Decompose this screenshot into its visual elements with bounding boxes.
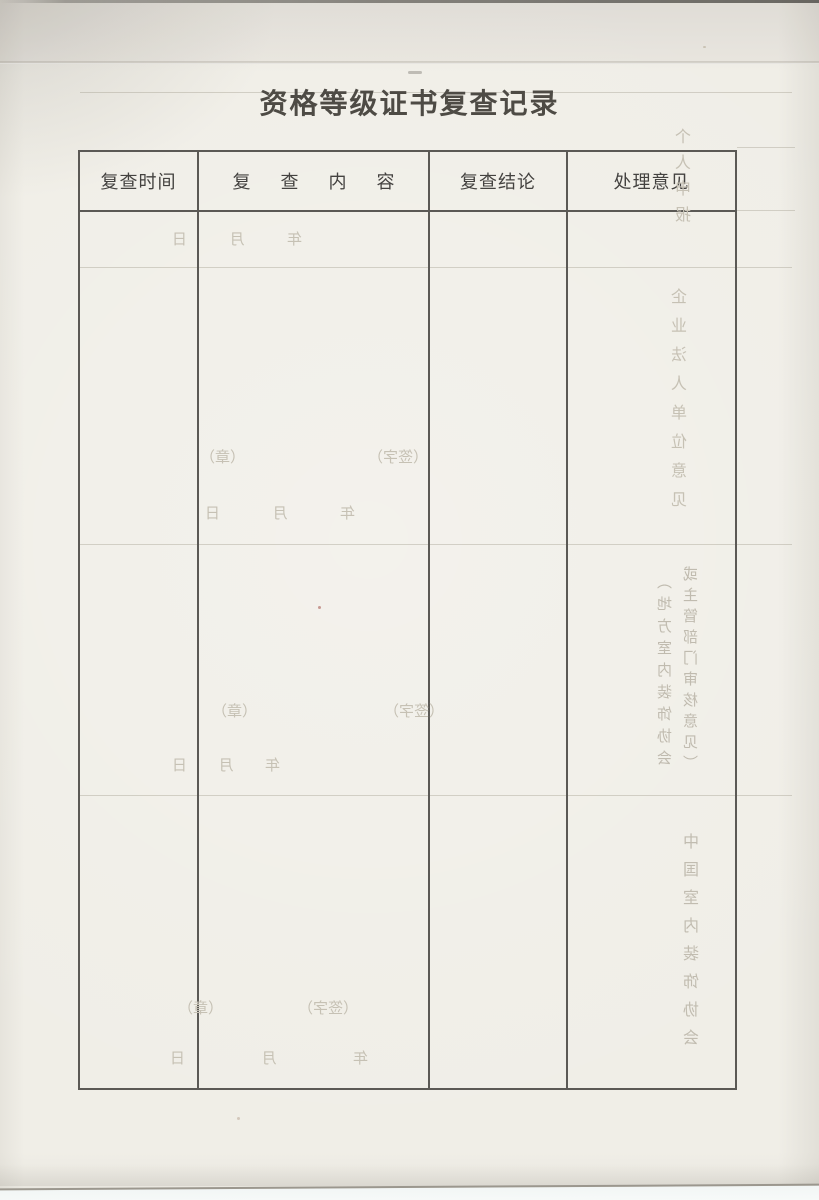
ghost-month: 月 — [219, 757, 234, 775]
bleedthrough-sign-row: （签字） （章） — [200, 449, 428, 467]
bleedthrough-vertical-label: 个人申报 — [676, 128, 696, 240]
bleedthrough-date-row: 年 月 日 — [172, 231, 302, 249]
paper-bottom-edge — [0, 1184, 819, 1200]
header-review-conclusion: 复查结论 — [430, 152, 566, 210]
bleedthrough-date-row: 年 月 日 — [172, 757, 280, 775]
ghost-day: 日 — [172, 757, 187, 775]
bottom-edge-shadow — [0, 1164, 819, 1186]
top-shade-band — [0, 0, 819, 62]
page-title: 资格等级证书复查记录 — [0, 82, 819, 122]
empty-cell-review-time — [80, 212, 197, 1088]
ghost-seal-label: （章） — [212, 703, 257, 721]
ghost-year: 年 — [340, 505, 355, 523]
bleedthrough-line — [737, 210, 795, 211]
paper-crease — [0, 61, 819, 64]
scanned-page: 资格等级证书复查记录 复查时间 复查内容 复查结论 处理意见 年 月 日 （签字… — [0, 0, 819, 1200]
bleedthrough-vertical-label: （地方室内装饰协会 — [656, 574, 676, 776]
bleedthrough-sign-row: （签字） （章） — [178, 1000, 358, 1018]
ghost-signature-label: （签字） — [384, 703, 444, 721]
ghost-month: 月 — [262, 1050, 277, 1068]
paper-speck — [237, 1117, 240, 1120]
bleedthrough-vertical-label: 或主管部门审核意见） — [682, 566, 702, 782]
paper-speck — [703, 46, 706, 48]
bleedthrough-sign-row: （签字） （章） — [212, 703, 444, 721]
ghost-signature-label: （签字） — [298, 1000, 358, 1018]
empty-cell-handling-opinion — [568, 212, 735, 1088]
empty-cell-review-content — [199, 212, 428, 1088]
review-record-table: 复查时间 复查内容 复查结论 处理意见 — [78, 150, 737, 1090]
page-top-edge — [0, 0, 819, 3]
header-handling-opinion: 处理意见 — [568, 152, 735, 210]
ghost-month: 月 — [230, 231, 245, 249]
ghost-seal-label: （章） — [200, 449, 245, 467]
ghost-day: 日 — [170, 1050, 185, 1068]
header-review-time-label: 复查时间 — [101, 168, 177, 194]
ghost-month: 月 — [273, 505, 288, 523]
empty-cell-review-conclusion — [430, 212, 566, 1088]
ghost-seal-label: （章） — [178, 1000, 223, 1018]
bleedthrough-date-row: 年 月 日 — [170, 1050, 368, 1068]
bleedthrough-date-row: 年 月 日 — [205, 505, 355, 523]
bleedthrough-line — [737, 147, 795, 148]
header-review-time: 复查时间 — [80, 152, 197, 210]
ghost-year: 年 — [353, 1050, 368, 1068]
bleedthrough-vertical-label: 企业法人单位意见 — [672, 288, 692, 526]
ghost-year: 年 — [287, 231, 302, 249]
header-review-content-label: 复查内容 — [233, 168, 425, 194]
ghost-year: 年 — [265, 757, 280, 775]
header-review-conclusion-label: 复查结论 — [460, 168, 536, 194]
header-review-content: 复查内容 — [199, 152, 428, 210]
ink-smudge — [408, 71, 422, 74]
ghost-day: 日 — [205, 505, 220, 523]
bleedthrough-vertical-label: 中国室内装饰协会 — [684, 833, 704, 1065]
ghost-day: 日 — [172, 231, 187, 249]
ghost-signature-label: （签字） — [368, 449, 428, 467]
